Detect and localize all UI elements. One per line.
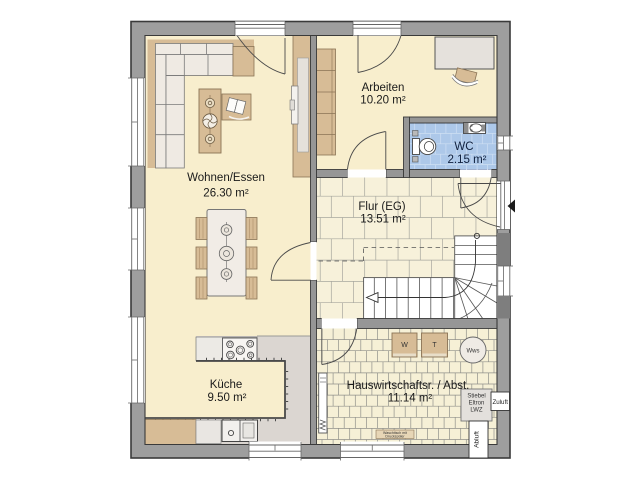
svg-text:Küche: Küche	[210, 379, 243, 391]
svg-text:Wohnen/Essen: Wohnen/Essen	[187, 172, 265, 184]
svg-text:Abluft: Abluft	[474, 431, 481, 448]
svg-text:26.30 m²: 26.30 m²	[203, 188, 249, 200]
svg-text:Wws: Wws	[467, 349, 480, 355]
svg-text:Zuluft: Zuluft	[492, 399, 508, 406]
svg-text:T: T	[432, 342, 437, 349]
svg-text:13.51 m²: 13.51 m²	[360, 214, 406, 226]
svg-text:Stiebel: Stiebel	[467, 394, 485, 400]
svg-text:Flur (EG): Flur (EG)	[358, 201, 405, 213]
svg-text:Arbeiten: Arbeiten	[362, 82, 405, 94]
svg-text:Hauswirtschaftsr. / Abst.: Hauswirtschaftsr. / Abst.	[347, 380, 470, 392]
svg-text:9.50 m²: 9.50 m²	[208, 392, 247, 404]
svg-text:10.20 m²: 10.20 m²	[360, 95, 406, 107]
svg-text:Eltron: Eltron	[469, 401, 485, 407]
svg-text:Druckspüler: Druckspüler	[385, 435, 405, 439]
svg-text:11.14 m²: 11.14 m²	[388, 393, 433, 405]
svg-text:W: W	[401, 342, 408, 349]
svg-text:LWZ: LWZ	[470, 408, 483, 414]
svg-text:2.15 m²: 2.15 m²	[448, 154, 487, 166]
svg-text:WC: WC	[454, 141, 473, 153]
